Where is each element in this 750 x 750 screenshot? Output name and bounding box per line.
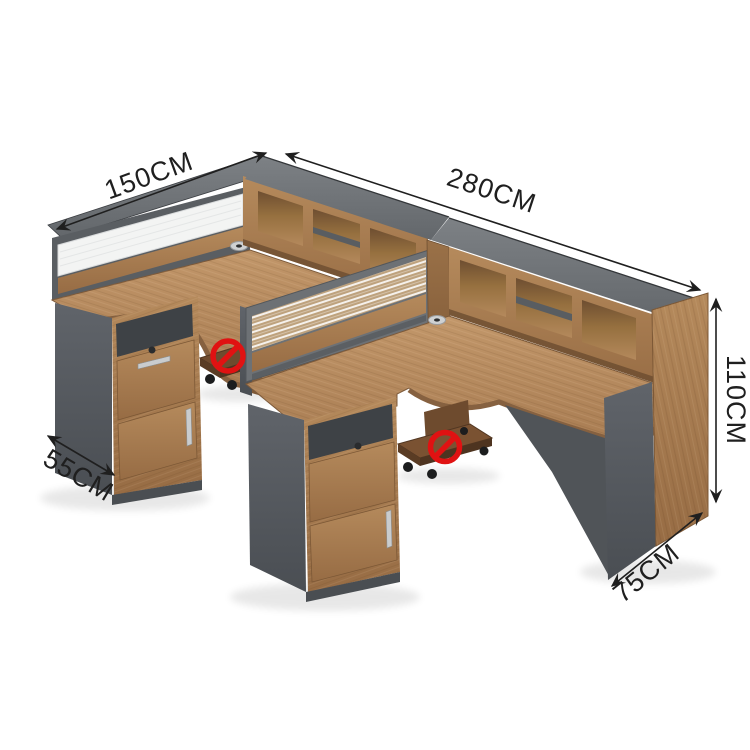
right-grommet-hole [429, 316, 446, 325]
right-pedestal [248, 397, 400, 602]
caster-wheel [460, 427, 468, 435]
left-drawer-lock [149, 347, 156, 354]
dimension-110cm: 110CM [716, 299, 750, 502]
caster-wheel [427, 469, 437, 479]
caster-wheel [403, 462, 413, 472]
cpu-cart-right [398, 400, 492, 479]
desk-dimension-render: 150CM 280CM 110CM 55CM 75CM [0, 0, 750, 750]
dim-label-110: 110CM [721, 355, 750, 445]
caster-wheel [227, 380, 237, 390]
right-inner-leg-panel [604, 382, 656, 580]
product-image: 150CM 280CM 110CM 55CM 75CM [0, 0, 750, 750]
left-bottom-drawer-handle [186, 408, 192, 446]
right-bottom-drawer-handle [386, 510, 392, 548]
caster-wheel [480, 447, 489, 456]
right-pedestal-side [248, 404, 306, 592]
caster-wheel [205, 374, 215, 384]
side-panel-grain [652, 293, 708, 546]
right-drawer-lock [355, 443, 362, 450]
